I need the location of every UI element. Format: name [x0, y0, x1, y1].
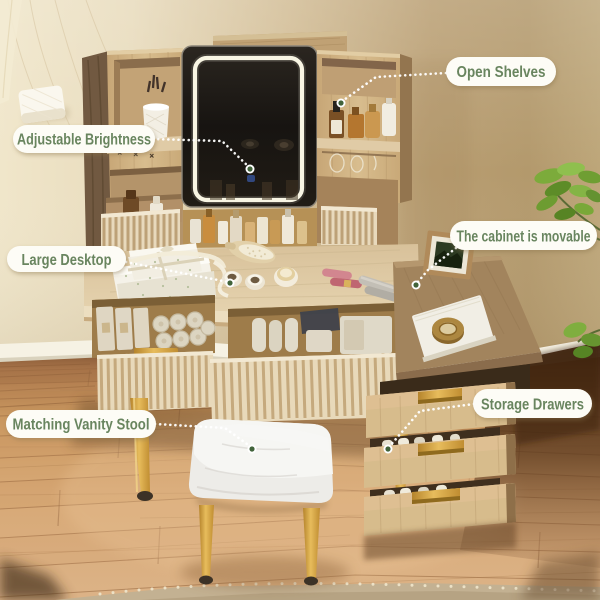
svg-text:Adjustable Brightness: Adjustable Brightness	[17, 132, 151, 149]
svg-text:Large Desktop: Large Desktop	[22, 252, 112, 269]
svg-text:Matching Vanity Stool: Matching Vanity Stool	[13, 417, 150, 434]
svg-text:Storage Drawers: Storage Drawers	[481, 397, 584, 414]
svg-text:The cabinet is movable: The cabinet is movable	[457, 229, 591, 246]
svg-text:Open Shelves: Open Shelves	[457, 64, 546, 81]
